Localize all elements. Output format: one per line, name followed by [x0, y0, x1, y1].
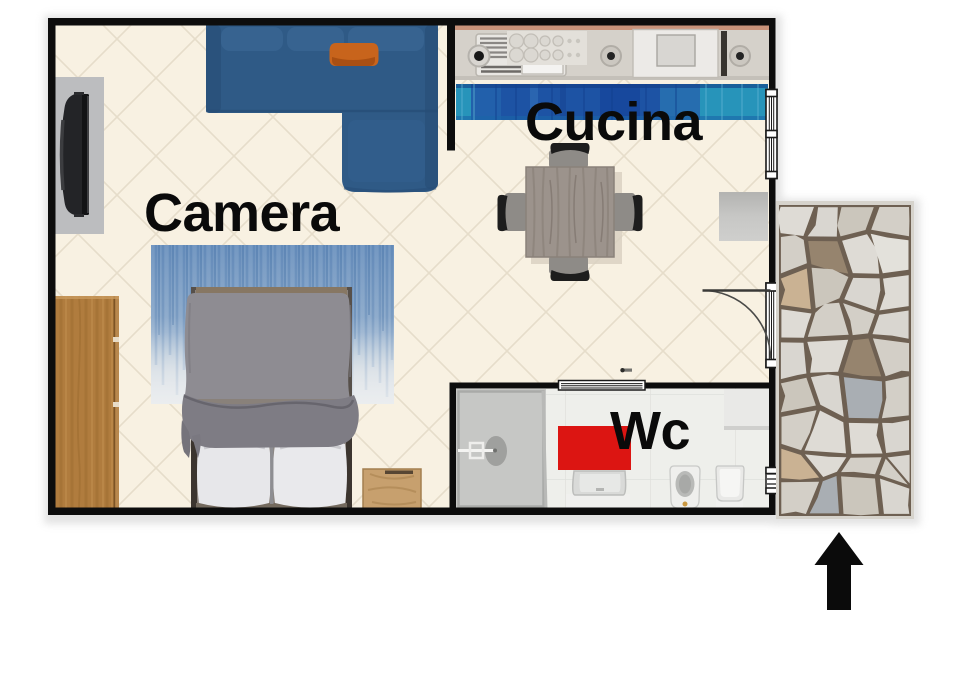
svg-text:Camera: Camera	[144, 183, 341, 243]
svg-text:Cucina: Cucina	[525, 92, 704, 152]
svg-text:Wc: Wc	[610, 401, 690, 461]
